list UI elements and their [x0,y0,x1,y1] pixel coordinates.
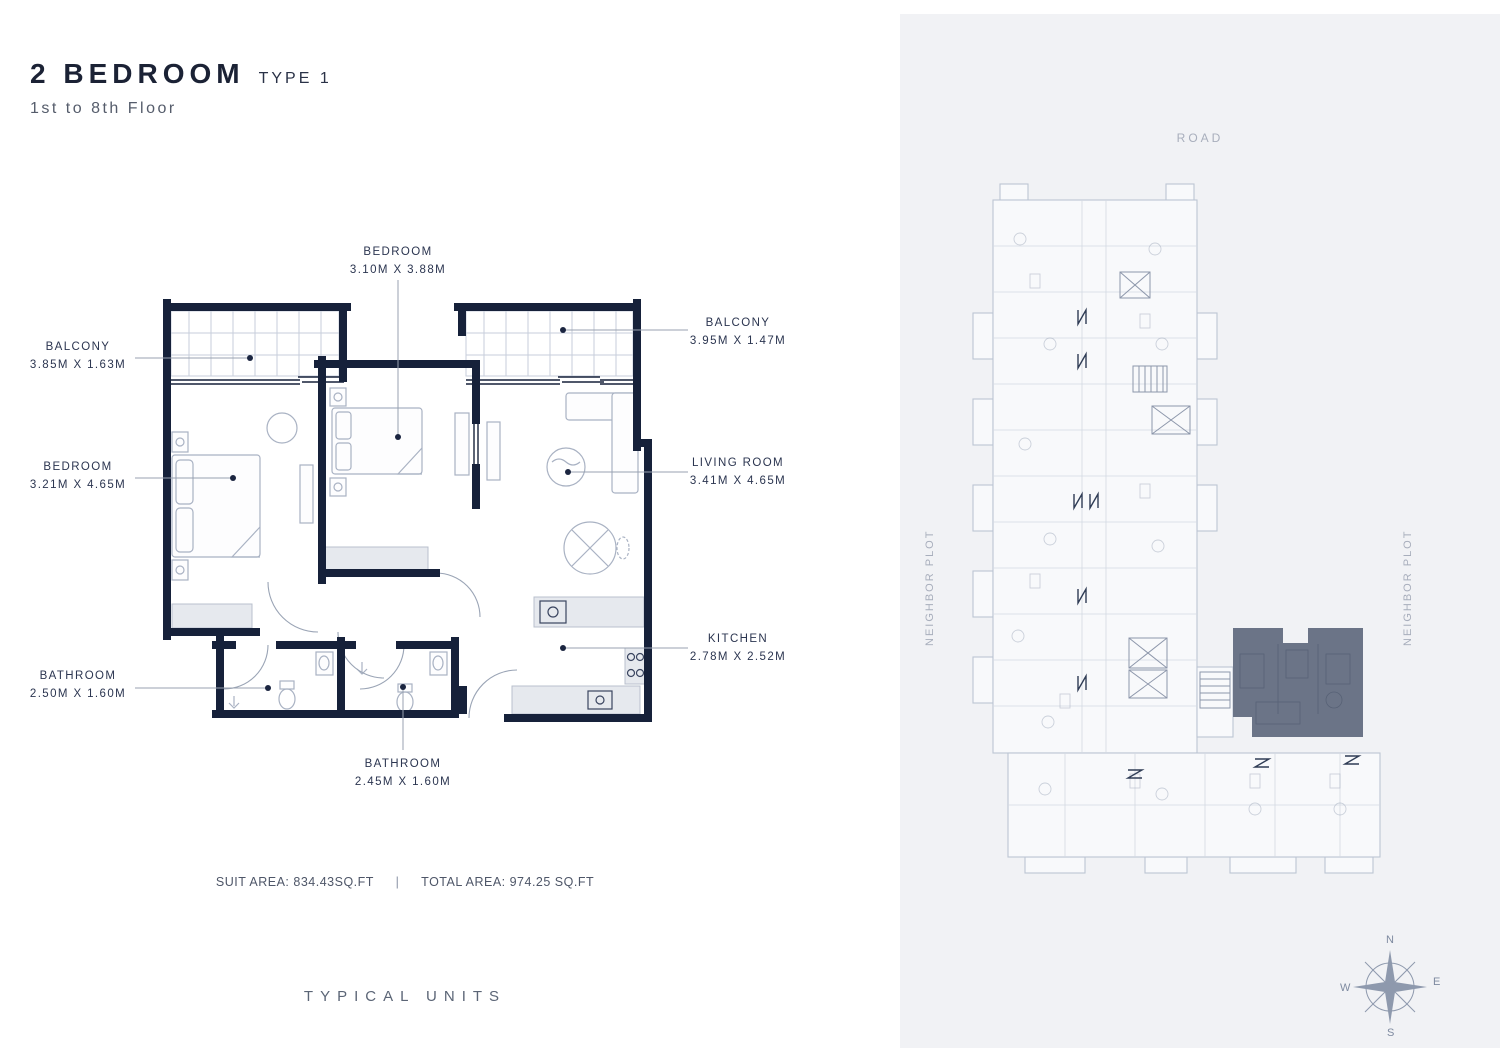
room-dims: 3.10M X 3.88M [298,261,498,279]
highlighted-unit [1233,628,1363,737]
room-name: BALCONY [4,338,152,356]
room-name: BALCONY [648,314,828,332]
label-bedroom-left: BEDROOM 3.21M X 4.65M [4,458,152,494]
room-dims: 2.50M X 1.60M [4,685,152,703]
label-balcony-right: BALCONY 3.95M X 1.47M [648,314,828,350]
room-dims: 3.95M X 1.47M [648,332,828,350]
label-bathroom-bottom: BATHROOM 2.45M X 1.60M [303,755,503,791]
room-dims: 3.85M X 1.63M [4,356,152,374]
label-bathroom-left: BATHROOM 2.50M X 1.60M [4,667,152,703]
room-name: KITCHEN [648,630,828,648]
compass-n: N [1386,934,1394,946]
room-name: BEDROOM [4,458,152,476]
room-dims: 2.78M X 2.52M [648,648,828,666]
room-name: LIVING ROOM [648,454,828,472]
service-riser [455,686,467,714]
room-dims: 2.45M X 1.60M [303,773,503,791]
room-name: BATHROOM [303,755,503,773]
compass-e: E [1433,976,1440,988]
room-name: BATHROOM [4,667,152,685]
unit-floor-plan [0,0,900,1061]
label-living-room: LIVING ROOM 3.41M X 4.65M [648,454,828,490]
label-balcony-left: BALCONY 3.85M X 1.63M [4,338,152,374]
road-label: ROAD [900,131,1500,145]
neighbor-plot-left: NEIGHBOR PLOT [924,446,936,646]
room-name: BEDROOM [298,243,498,261]
page-root: 2 BEDROOM TYPE 1 1st to 8th Floor [0,0,1500,1061]
label-kitchen: KITCHEN 2.78M X 2.52M [648,630,828,666]
label-bedroom-top: BEDROOM 3.10M X 3.88M [298,243,498,279]
compass-rose-icon [1350,939,1430,1034]
compass-w: W [1340,982,1350,994]
room-dims: 3.21M X 4.65M [4,476,152,494]
door-arcs [224,573,517,718]
leader-dots [230,327,571,691]
room-dims: 3.41M X 4.65M [648,472,828,490]
floor-plate-panel: ROAD NEIGHBOR PLOT NEIGHBOR PLOT N E S W [900,14,1500,1048]
building-outline [973,184,1380,873]
compass-s: S [1387,1027,1394,1039]
neighbor-plot-right: NEIGHBOR PLOT [1402,446,1414,646]
